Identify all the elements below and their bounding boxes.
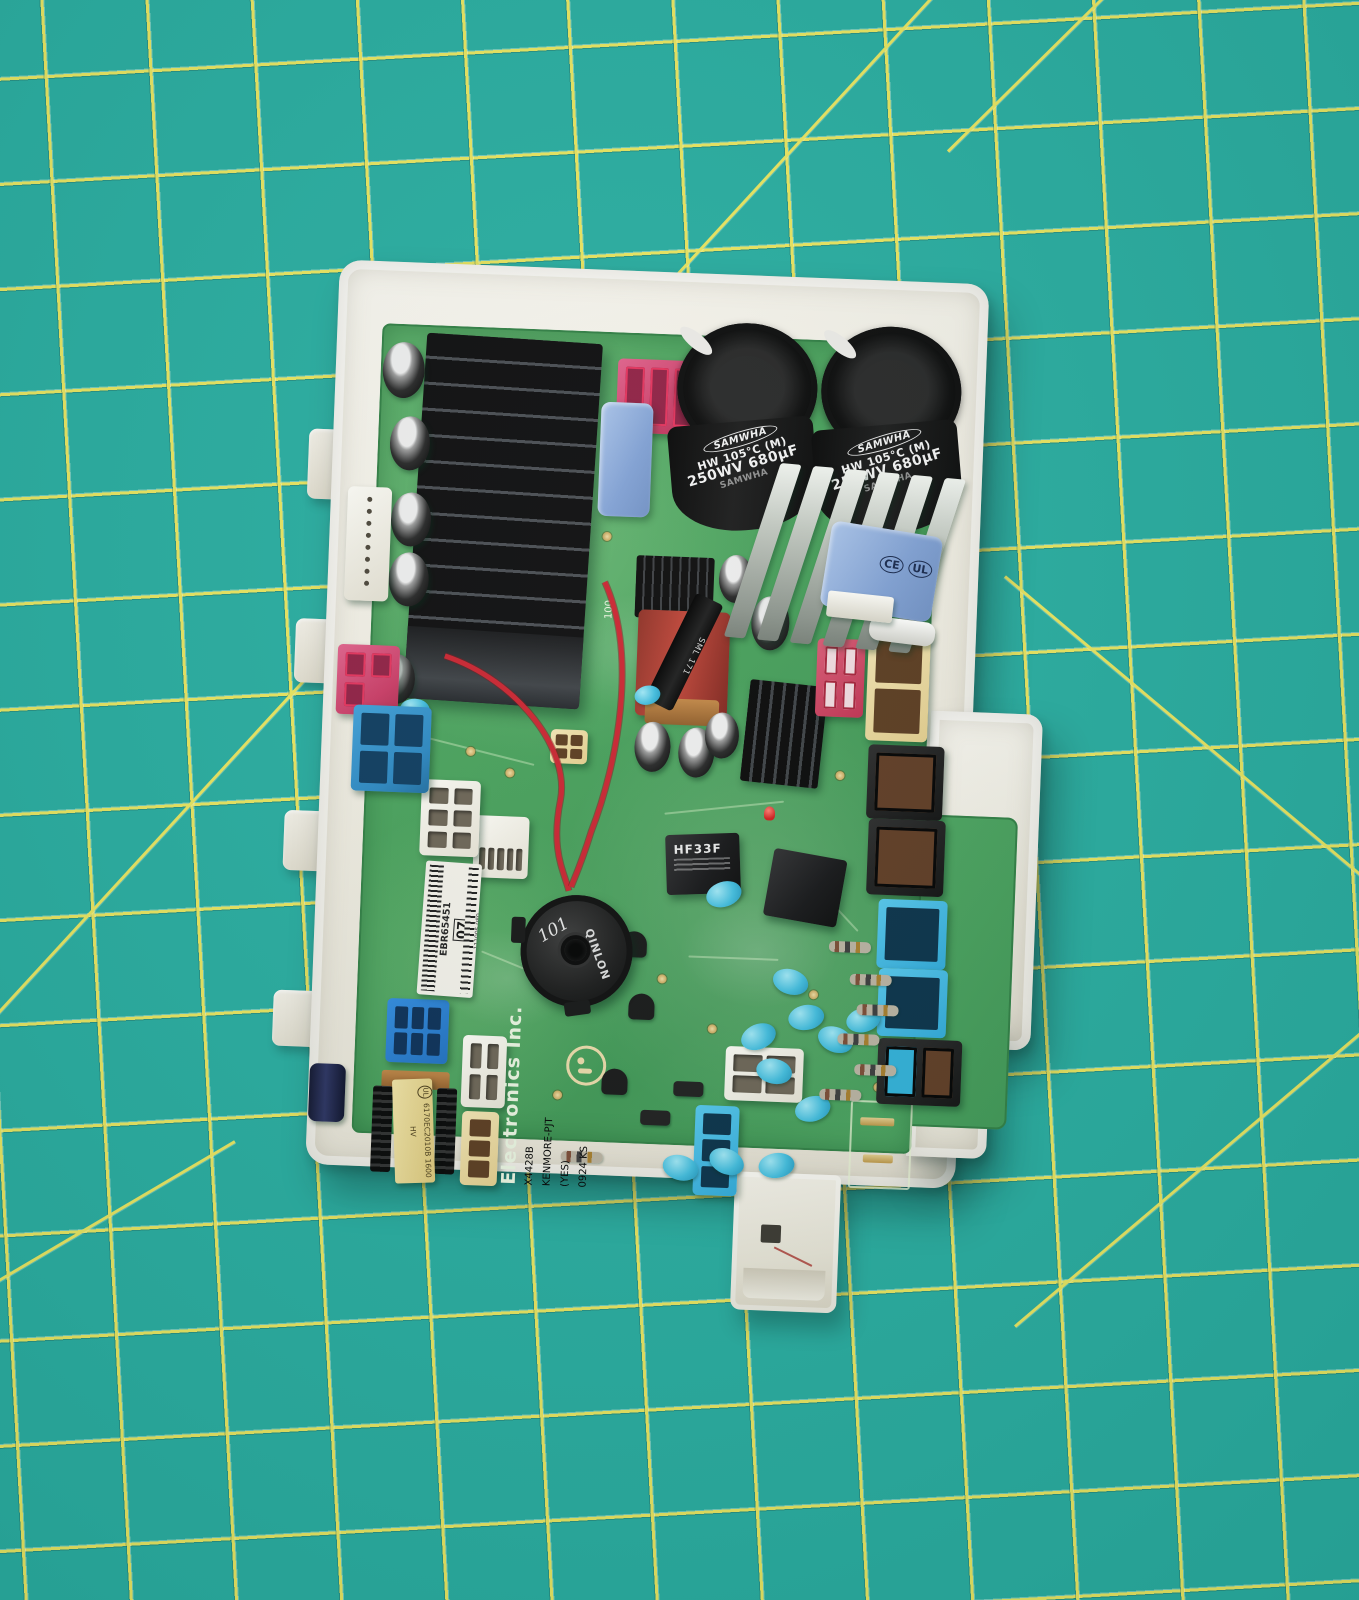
relay [763,848,848,928]
solder-pad [657,974,666,983]
connector-slot [873,688,921,734]
connector-slot [884,907,939,962]
solder-pad [708,1024,717,1033]
connector-slot [454,788,473,805]
jumper-component [640,1110,671,1126]
transformer-coil [370,1085,393,1172]
connector-slot [570,748,582,759]
connector-slot [429,787,448,804]
main-heatsink [403,333,603,710]
connector-slot [842,681,856,709]
connector-slot [486,1075,498,1100]
connector-slot [823,680,837,708]
connector-slot [468,1160,490,1177]
pcb: SAMWHA HW 105°C (M) 250WV 680µF SAMWHA S… [351,323,942,1154]
service-barcode-label: EBR65451 07 111005 080 [417,860,483,998]
gold-pad-bar [860,1117,894,1126]
mounting-tab-slot [761,1224,782,1243]
connector-cream-3pin [460,1111,500,1186]
transistor [628,993,655,1020]
connector-slot [393,752,422,785]
connector-black [866,744,945,821]
connector-slot [427,1033,441,1055]
connector-slot [555,748,567,759]
buzzer-sound-hole [564,939,587,962]
transformer-coil [434,1088,457,1175]
connector-slot [395,1006,408,1028]
gold-pad-bar [863,1154,893,1163]
resistor [856,1004,898,1017]
silkscreen-ref-100: 100 [603,600,615,620]
connector-slot [556,734,568,745]
solder-pad [466,747,475,756]
connector-slot [824,646,838,674]
resistor [829,941,871,954]
control-board-assembly: SAMWHA HW 105°C (M) 250WV 680µF SAMWHA S… [260,258,1079,1327]
ul-mark-icon: UL [417,1085,432,1098]
solder-pad [505,768,514,777]
relay-fine-print [674,857,730,873]
connector-white-6pin [419,779,481,857]
connector-slot [470,1043,482,1068]
connector-slot [570,735,582,746]
mounting-tab-lip [742,1268,825,1301]
transformer-part: 6170EC2010B [422,1103,433,1157]
connector-slot [921,1048,954,1099]
buzzer-brand: QINLON [582,927,612,982]
connector-slot [732,1075,762,1093]
cutting-mat: SAMWHA HW 105°C (M) 250WV 680µF SAMWHA S… [0,0,1359,1600]
connector-slot [469,1119,491,1136]
housing-mounting-tab [730,1171,841,1313]
disc-capacitor [786,1002,826,1033]
film-capacitor-blue [597,402,653,518]
resistor [819,1089,861,1102]
connector-slot [843,647,857,675]
connector-slot [487,1044,499,1069]
line-transformer: UL 6170EC2010B 1600 HV [369,1077,459,1190]
connector-slot [885,976,940,1030]
connector-slot [428,1007,442,1029]
connector-slot [427,831,446,848]
connector-slot [453,810,472,827]
connector-slot [515,849,522,871]
connector-slot [411,1007,425,1029]
heatsink-base [403,626,583,710]
resistor [854,1064,896,1077]
connector-slot [506,848,513,870]
silkscreen-outline-box [848,1100,913,1190]
scratch-mark [774,1246,813,1266]
transformer-tape-label: UL 6170EC2010B 1600 HV [392,1078,435,1183]
connector-slot [394,1032,407,1054]
resistor [850,974,892,987]
resistor [837,1033,879,1046]
electrolytic-capacitor-small [382,341,426,399]
solder-pad [602,532,611,541]
relay-model: HF33F [673,841,722,857]
connector-slot [428,809,447,826]
connector-blue-6pin [385,998,449,1064]
connector-slot [874,827,937,889]
connector-red-4pin [815,638,866,718]
connector-slot [394,714,423,747]
solder-pad [835,771,844,780]
connector-slot [469,1140,491,1157]
electrolytic-capacitor-small [704,712,740,759]
connector-white-header [344,486,392,602]
connector-slot [410,1033,424,1055]
connector-slot [345,652,366,677]
connector-slot [874,752,936,812]
connector-slot [497,848,504,870]
connector-cyan [876,899,948,971]
connector-slot [452,832,471,849]
jumper-component [673,1081,704,1097]
buzzer-clip [511,917,526,944]
capacitor-navy [308,1063,346,1122]
connector-slot [344,682,365,707]
ul-mark-icon: UL [907,559,933,580]
transistor [601,1068,628,1095]
red-led [764,806,776,820]
header-pins [364,497,372,586]
connector-blue-4pin [351,704,432,793]
connector-slot [703,1113,732,1135]
connector-slot [371,653,392,678]
electrolytic-capacitor-small [634,721,672,772]
connector-slot [359,751,388,784]
connector-black [866,818,946,897]
connector-cream-4pin-small [550,729,588,764]
connector-slot [488,848,495,870]
connector-slot [469,1074,481,1099]
ce-mark-icon: CE [879,554,905,575]
connector-slot [360,713,389,746]
